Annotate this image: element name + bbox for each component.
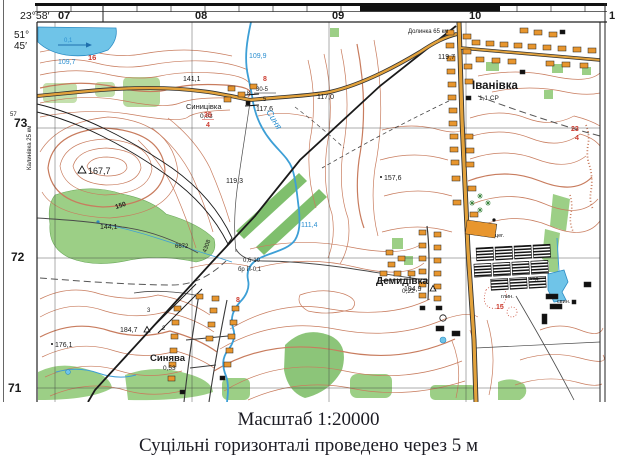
red-number-label: 16 xyxy=(88,53,96,62)
grid-column-label: 08 xyxy=(195,10,207,22)
red-number-label: 8 xyxy=(236,297,240,304)
caption-scale: Масштаб 1:20000 xyxy=(0,407,617,433)
settlement-label-ivanivka: Іванівка xyxy=(472,80,518,92)
height-label: 119,3 xyxy=(226,178,243,185)
object-label-tseh: цег. xyxy=(495,233,504,239)
red-number-label: 4 xyxy=(575,135,579,142)
map-image: Синицівка 0,03 Іванівка 1,1 СР Демидівка… xyxy=(0,0,617,402)
height-label: 141,1 xyxy=(183,76,201,83)
grid-row-label: 72 xyxy=(11,250,25,264)
water-elevation-label: 109,9 xyxy=(249,53,267,60)
grid-column-label: 09 xyxy=(332,10,344,22)
latitude-degrees: 51° xyxy=(14,30,29,41)
object-label-vod: вод. xyxy=(530,276,540,282)
grid-column-label: 1 xyxy=(609,10,615,22)
red-number-label: 15 xyxy=(496,304,504,311)
grid-column-label: 07 xyxy=(58,10,70,22)
grid-row-label: 71 xyxy=(8,381,22,395)
ford-spec-label: бр П-0,1 xyxy=(238,267,262,273)
topo-map-page: Синицівка 0,03 Іванівка 1,1 СР Демидівка… xyxy=(0,0,617,460)
water-elevation-label: 109,7 xyxy=(58,59,76,66)
object-label-svyn: свин. xyxy=(557,299,571,305)
ford-spec-label: 0,6-10 xyxy=(243,258,261,264)
longitude-label: 23°58′ xyxy=(20,10,50,22)
grid-column-label: 10 xyxy=(469,10,481,22)
caption-contour-interval: Суцільні горизонталі проведено через 5 м xyxy=(0,433,617,459)
bridge-spec-numerator: 30-5 xyxy=(256,87,269,93)
settlement-info-synyava: 0,53 xyxy=(163,365,176,372)
railway-marker-label: 6672 xyxy=(175,244,189,250)
map-canvas: Синицівка 0,03 Іванівка 1,1 СР Демидівка… xyxy=(0,0,617,402)
bridge-material-label: К xyxy=(247,91,251,97)
height-label: 184,7 xyxy=(120,327,138,334)
height-label: 144,1 xyxy=(100,224,118,231)
height-label: 176,1 xyxy=(55,342,73,349)
height-label: 194,9 xyxy=(404,286,422,293)
latitude-minutes: 45′ xyxy=(14,41,27,52)
settlement-info-ivanivka: 1,1 СР xyxy=(479,95,499,102)
rail-destination-left: Калинівка 25 км xyxy=(27,126,33,170)
red-number-label: 35 xyxy=(204,112,212,119)
red-number-label: 4 xyxy=(206,122,210,129)
flow-speed-label: 0,1 xyxy=(64,38,73,44)
height-label: 157,6 xyxy=(384,175,402,182)
height-label: 117,0 xyxy=(317,94,334,101)
height-label: 119,7 xyxy=(438,54,455,61)
settlement-label-synytsivka: Синицівка xyxy=(186,102,222,111)
grid-row-label: 73 xyxy=(14,116,28,130)
settlement-label-synyava: Синява xyxy=(150,353,186,364)
rail-destination-top: Долинка 65 км xyxy=(408,29,448,35)
object-label-hlyn: глин. xyxy=(501,294,514,300)
red-number-label: 8 xyxy=(263,76,267,83)
height-label: 167,7 xyxy=(88,166,111,176)
water-elevation-label: 111,4 xyxy=(301,222,318,229)
red-number-label: 23 xyxy=(571,126,579,133)
map-caption: Масштаб 1:20000 Суцільні горизонталі про… xyxy=(0,402,617,459)
